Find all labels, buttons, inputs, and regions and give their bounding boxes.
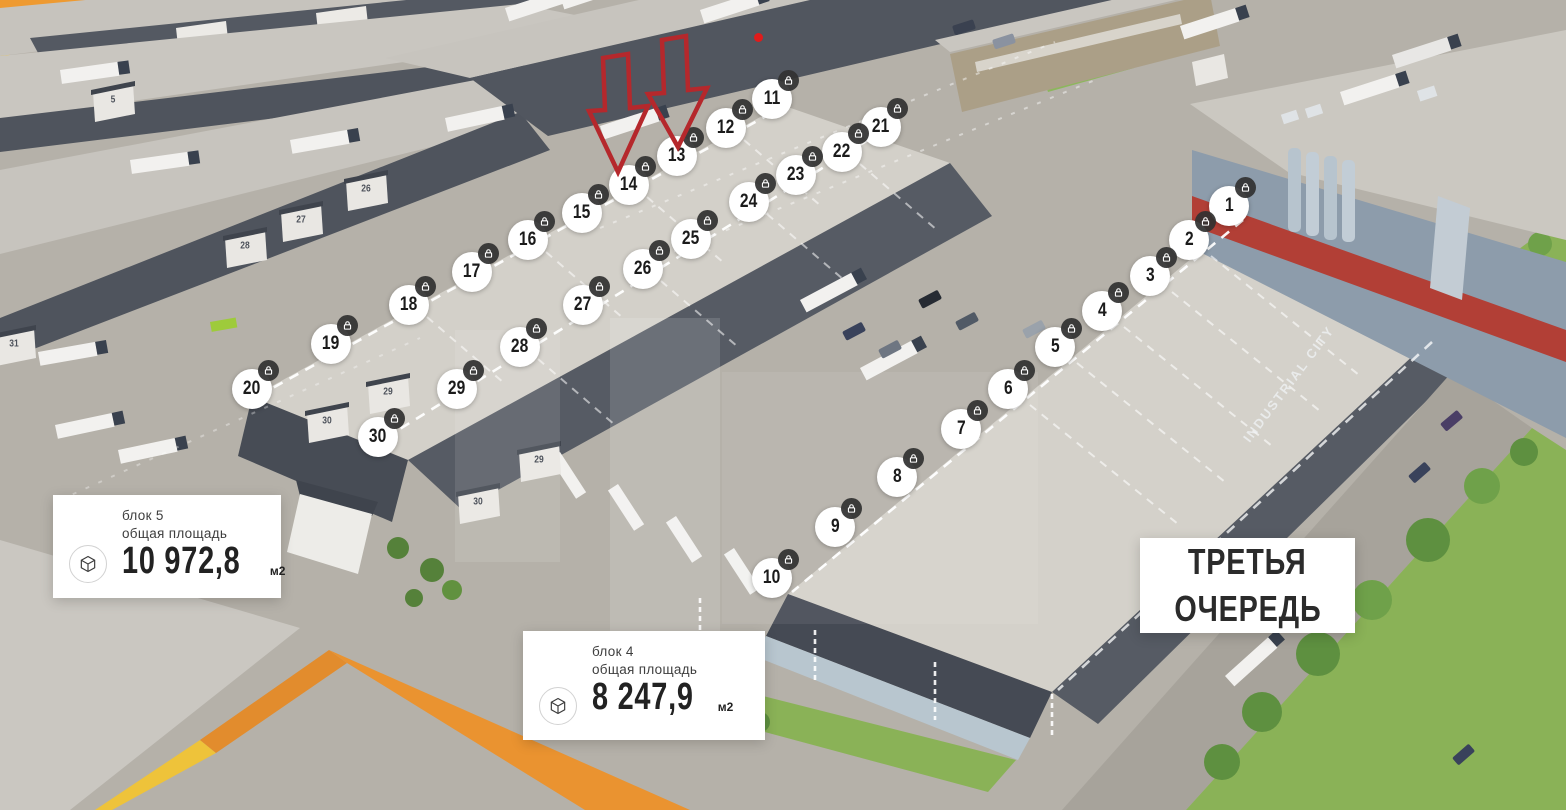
unit-number: 13 (668, 145, 685, 167)
unit-number: 8 (893, 466, 902, 488)
lock-icon (384, 408, 405, 429)
unit-marker-26[interactable]: 26 (623, 249, 663, 289)
unit-marker-13[interactable]: 13 (657, 136, 697, 176)
unit-number: 15 (573, 202, 590, 224)
unit-marker-layer: 1234567891011121314151617181920212223242… (0, 0, 1566, 810)
unit-number: 1 (1225, 195, 1234, 217)
lock-icon (903, 448, 924, 469)
lock-icon (478, 243, 499, 264)
unit-marker-8[interactable]: 8 (877, 457, 917, 497)
lock-icon (697, 210, 718, 231)
lock-icon (588, 184, 609, 205)
lock-icon (1061, 318, 1082, 339)
unit-marker-25[interactable]: 25 (671, 219, 711, 259)
red-dot-annotation (754, 33, 763, 42)
lock-icon (683, 127, 704, 148)
unit-marker-7[interactable]: 7 (941, 409, 981, 449)
lock-icon (1195, 211, 1216, 232)
unit-number: 30 (369, 426, 386, 448)
unit-marker-11[interactable]: 11 (752, 79, 792, 119)
phase-line-2: ОЧЕРЕДЬ (1174, 586, 1321, 632)
lock-icon (755, 173, 776, 194)
lock-icon (1156, 247, 1177, 268)
industrial-park-site-map: INDUSTRIAL CITY 52627283130292930 123456… (0, 0, 1566, 810)
phase-line-1: ТРЕТЬЯ (1188, 539, 1307, 585)
unit-number: 11 (764, 88, 780, 110)
unit-number: 10 (763, 567, 780, 589)
block-area-value: 10 972,8 (122, 542, 241, 582)
unit-marker-20[interactable]: 20 (232, 369, 272, 409)
block-area-unit: м2 (718, 700, 734, 714)
unit-marker-22[interactable]: 22 (822, 132, 862, 172)
unit-marker-19[interactable]: 19 (311, 324, 351, 364)
lock-icon (415, 276, 436, 297)
unit-number: 5 (1051, 336, 1060, 358)
lock-icon (526, 318, 547, 339)
block4-info-card[interactable]: блок 4 общая площадь 8 247,9 м2 (523, 631, 765, 740)
unit-marker-3[interactable]: 3 (1130, 256, 1170, 296)
unit-marker-17[interactable]: 17 (452, 252, 492, 292)
unit-marker-14[interactable]: 14 (609, 165, 649, 205)
lock-icon (1108, 282, 1129, 303)
unit-number: 25 (682, 228, 699, 250)
unit-number: 28 (511, 336, 528, 358)
lock-icon (1014, 360, 1035, 381)
lock-icon (589, 276, 610, 297)
unit-number: 18 (400, 294, 417, 316)
unit-marker-9[interactable]: 9 (815, 507, 855, 547)
block-title: блок 5 (122, 508, 285, 523)
unit-marker-24[interactable]: 24 (729, 182, 769, 222)
lock-icon (463, 360, 484, 381)
lock-icon (337, 315, 358, 336)
lock-icon (649, 240, 670, 261)
lock-icon (534, 211, 555, 232)
block-area-unit: м2 (270, 564, 286, 578)
unit-number: 27 (574, 294, 591, 316)
unit-marker-23[interactable]: 23 (776, 155, 816, 195)
unit-number: 23 (787, 164, 804, 186)
block-title: блок 4 (592, 644, 733, 659)
lock-icon (732, 99, 753, 120)
unit-number: 2 (1185, 229, 1194, 251)
lock-icon (887, 98, 908, 119)
lock-icon (967, 400, 988, 421)
unit-number: 6 (1004, 378, 1013, 400)
block-subtitle: общая площадь (592, 662, 733, 677)
unit-marker-27[interactable]: 27 (563, 285, 603, 325)
unit-marker-18[interactable]: 18 (389, 285, 429, 325)
unit-marker-4[interactable]: 4 (1082, 291, 1122, 331)
unit-number: 9 (831, 516, 840, 538)
lock-icon (848, 123, 869, 144)
unit-number: 14 (620, 174, 637, 196)
lock-icon (778, 70, 799, 91)
unit-number: 24 (740, 191, 757, 213)
cube-icon (539, 687, 577, 725)
block-subtitle: общая площадь (122, 526, 285, 541)
unit-number: 12 (717, 117, 734, 139)
lock-icon (1235, 177, 1256, 198)
unit-marker-6[interactable]: 6 (988, 369, 1028, 409)
unit-number: 22 (833, 141, 850, 163)
lock-icon (635, 156, 656, 177)
unit-marker-15[interactable]: 15 (562, 193, 602, 233)
lock-icon (778, 549, 799, 570)
unit-number: 20 (243, 378, 260, 400)
lock-icon (841, 498, 862, 519)
unit-number: 19 (322, 333, 339, 355)
unit-number: 3 (1146, 265, 1155, 287)
block5-info-card[interactable]: блок 5 общая площадь 10 972,8 м2 (53, 495, 281, 598)
cube-icon (69, 545, 107, 583)
unit-number: 4 (1098, 300, 1107, 322)
unit-marker-30[interactable]: 30 (358, 417, 398, 457)
unit-marker-12[interactable]: 12 (706, 108, 746, 148)
unit-marker-10[interactable]: 10 (752, 558, 792, 598)
lock-icon (802, 146, 823, 167)
unit-marker-28[interactable]: 28 (500, 327, 540, 367)
unit-marker-16[interactable]: 16 (508, 220, 548, 260)
unit-number: 29 (448, 378, 465, 400)
unit-marker-29[interactable]: 29 (437, 369, 477, 409)
unit-marker-5[interactable]: 5 (1035, 327, 1075, 367)
unit-number: 16 (519, 229, 536, 251)
lock-icon (258, 360, 279, 381)
unit-number: 26 (634, 258, 651, 280)
unit-number: 17 (463, 261, 480, 283)
third-phase-label: ТРЕТЬЯ ОЧЕРЕДЬ (1140, 538, 1355, 633)
unit-number: 21 (872, 116, 889, 138)
unit-number: 7 (957, 418, 966, 440)
block-area-value: 8 247,9 (592, 678, 694, 718)
